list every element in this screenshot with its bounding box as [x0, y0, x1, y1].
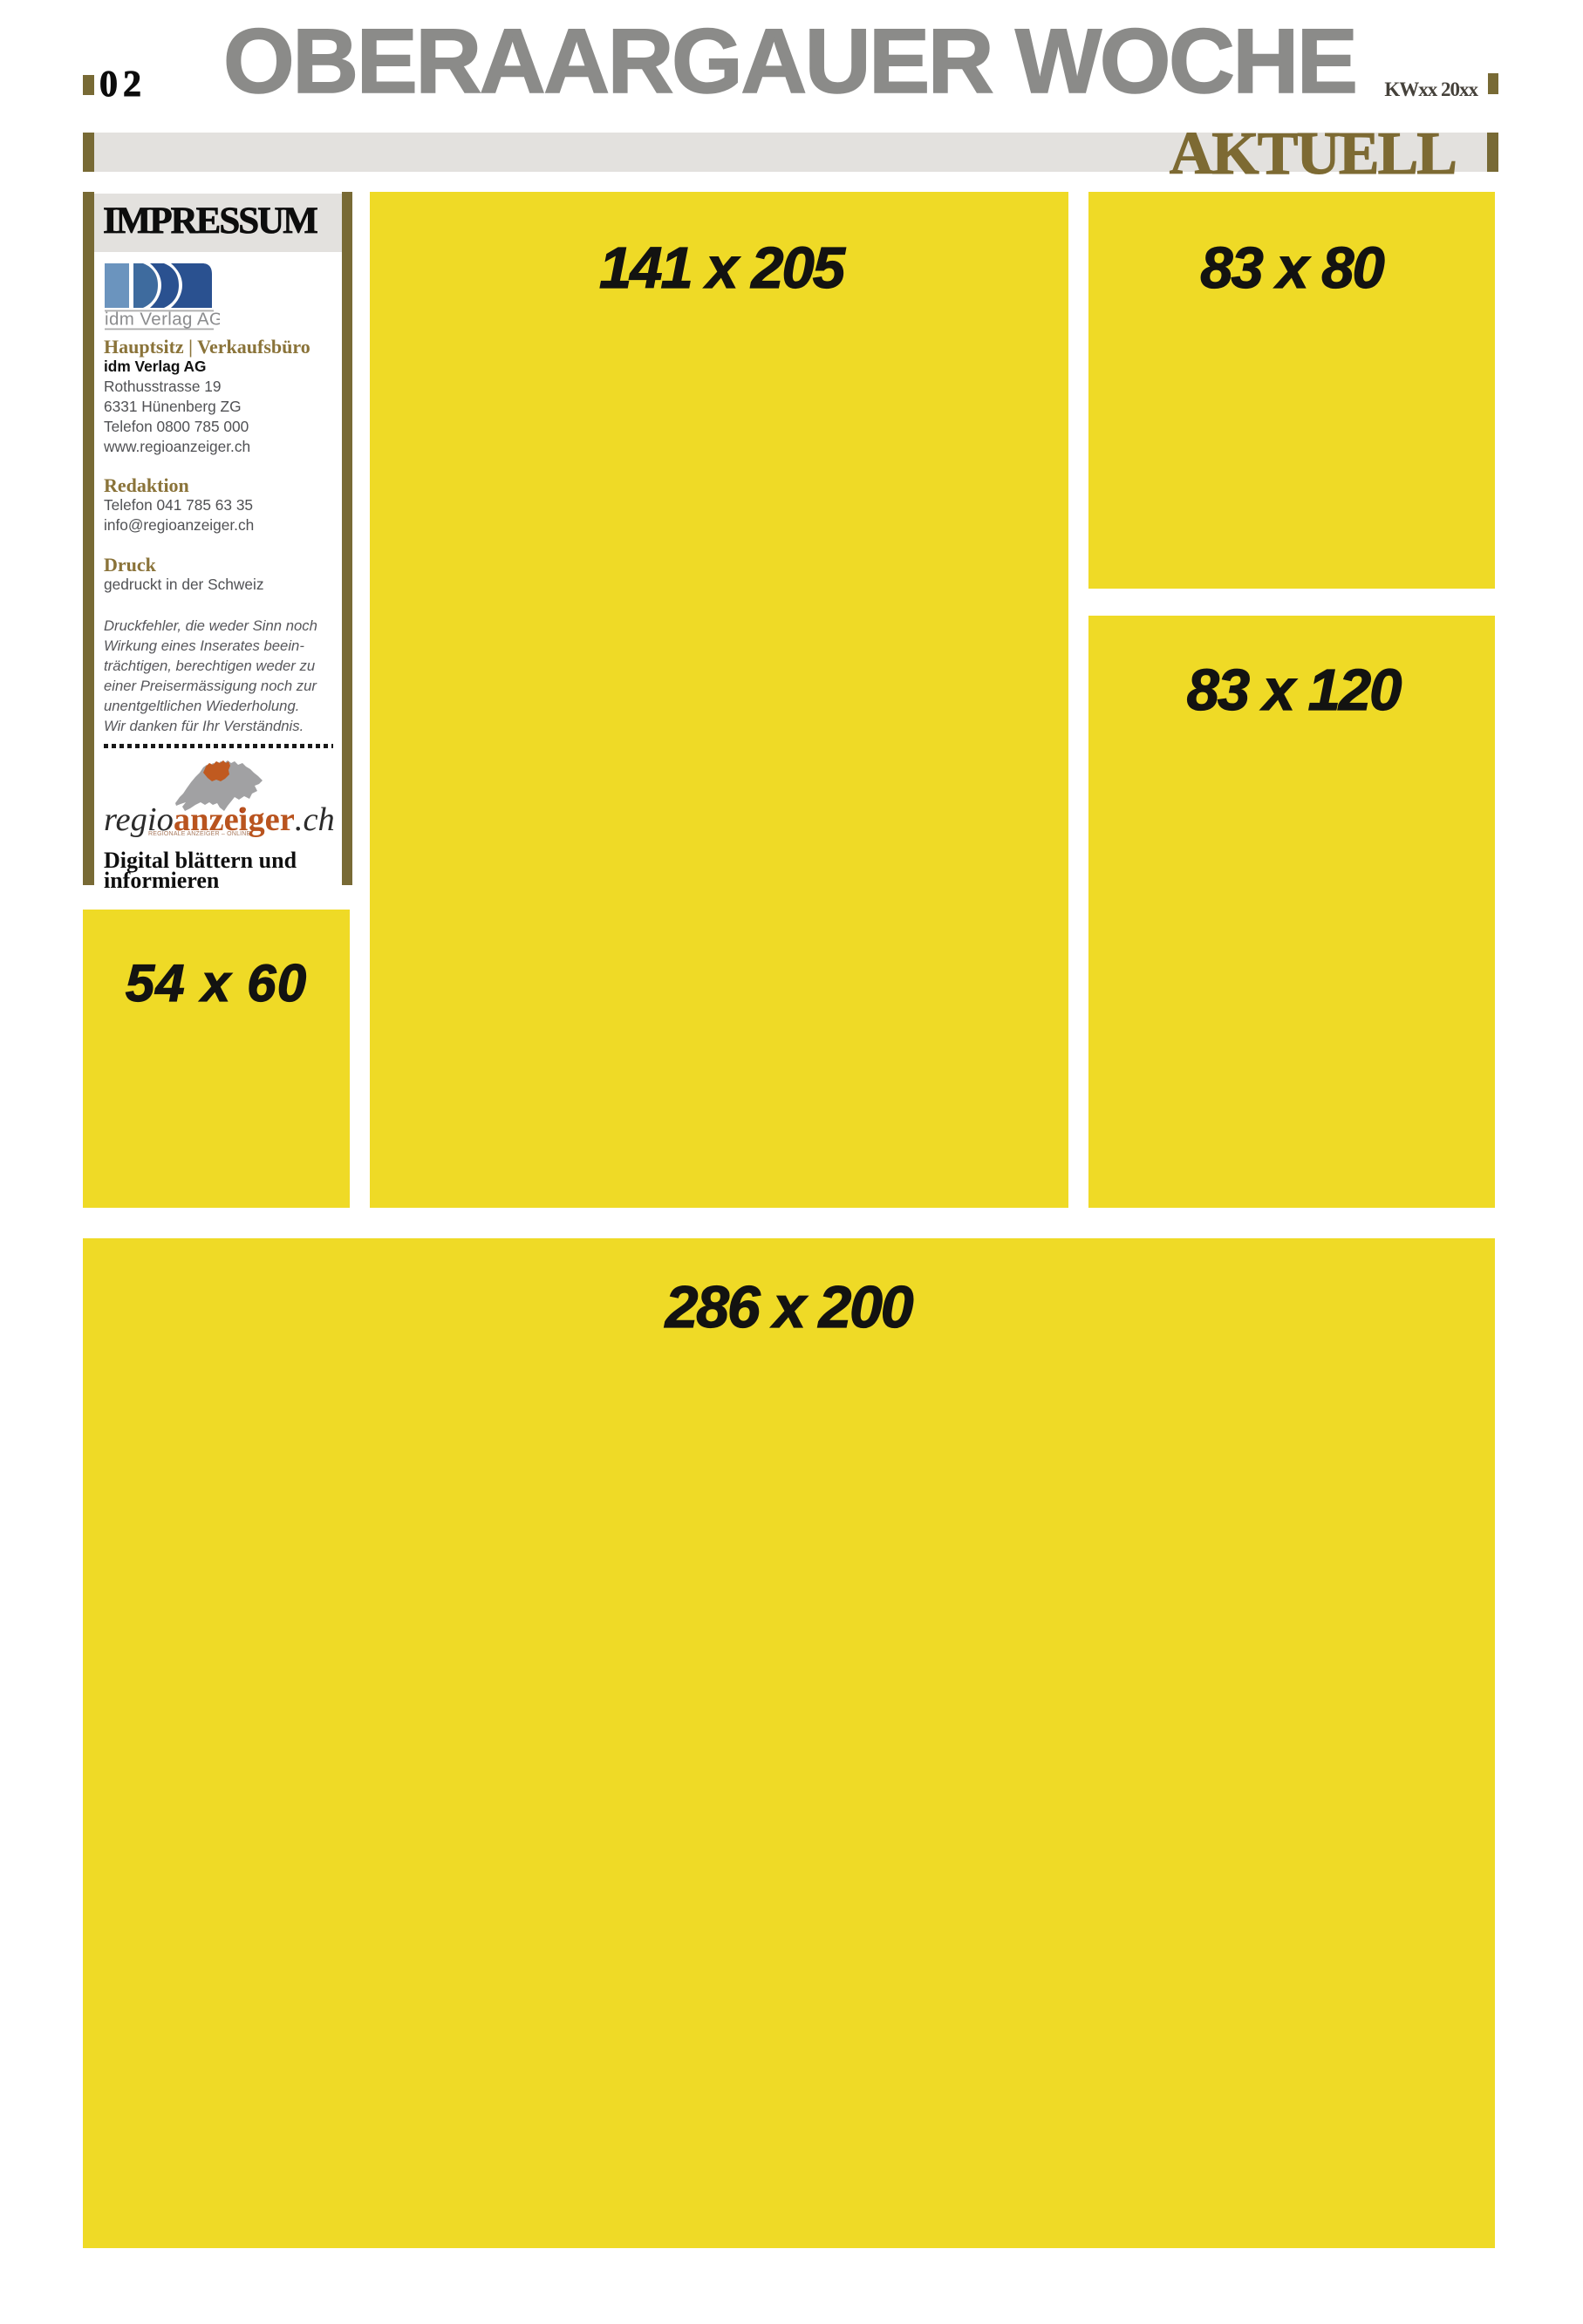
svg-text:idm Verlag AG: idm Verlag AG: [105, 310, 220, 330]
